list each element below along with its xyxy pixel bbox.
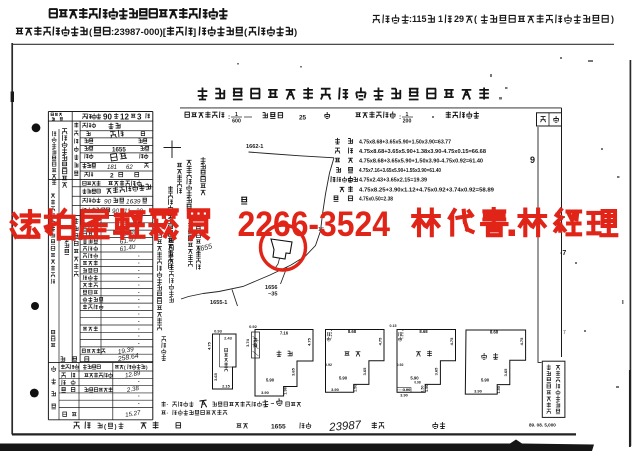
svg-text:1: 1	[438, 14, 443, 24]
svg-text:3.90: 3.90	[474, 389, 483, 394]
svg-text:2.43: 2.43	[224, 336, 233, 341]
svg-text:·: ·	[138, 334, 140, 340]
svg-text:0.92: 0.92	[397, 363, 404, 367]
svg-text:1.50: 1.50	[497, 386, 501, 393]
svg-text:~35: ~35	[268, 292, 278, 298]
svg-text:62: 62	[126, 165, 133, 171]
svg-text:0.93: 0.93	[214, 329, 223, 334]
svg-text:4.75: 4.75	[519, 337, 524, 346]
svg-text:3.90: 3.90	[261, 390, 270, 395]
svg-text:1655-1: 1655-1	[210, 300, 227, 306]
svg-text:200: 200	[403, 119, 412, 125]
svg-text:2.15: 2.15	[222, 383, 231, 388]
svg-text:8.68: 8.68	[419, 329, 428, 334]
svg-text:2: 2	[110, 173, 114, 180]
svg-text:4.75x7.16+3.65x5.90+1.55x3.90=: 4.75x7.16+3.65x5.90+1.55x3.90=61.40	[359, 168, 441, 174]
svg-text::: :	[228, 114, 230, 121]
svg-text:4.75x8.68+3.65x5.90+1.50x3.90-: 4.75x8.68+3.65x5.90+1.50x3.90-4.75x0.92=…	[359, 158, 483, 164]
svg-text:1655: 1655	[112, 147, 126, 154]
svg-text:(: (	[474, 14, 477, 24]
svg-text:4.75x8.25+3.90x1.12+4.75x0.92+: 4.75x8.25+3.90x1.12+4.75x0.92+3.74x0.92=…	[359, 188, 494, 194]
svg-text:1.98: 1.98	[284, 387, 288, 394]
svg-text:·: ·	[138, 254, 140, 260]
svg-text:3.65: 3.65	[434, 367, 439, 376]
svg-text:3.65: 3.65	[362, 367, 367, 376]
svg-text:·: ·	[138, 341, 140, 347]
svg-text:·: ·	[138, 298, 140, 304]
svg-text::23987-000)[: :23987-000)[	[111, 27, 167, 38]
svg-text:5.90: 5.90	[481, 378, 490, 383]
svg-text:]: ]	[193, 27, 196, 38]
svg-text:2266-3524: 2266-3524	[238, 204, 391, 244]
svg-text:3.90: 3.90	[400, 393, 407, 397]
svg-text:4.75: 4.75	[206, 341, 211, 350]
svg-text:1639: 1639	[126, 199, 141, 206]
svg-text:·: ·	[138, 327, 140, 333]
svg-text:4.75x8.68+3.65x5.90+1.38x3.90-: 4.75x8.68+3.65x5.90+1.38x3.90-4.75x0.15=…	[359, 149, 486, 155]
svg-text:600: 600	[232, 119, 241, 125]
svg-text:0.92: 0.92	[249, 324, 258, 329]
svg-text:5.90: 5.90	[339, 376, 348, 381]
svg-text:·: ·	[138, 320, 140, 326]
svg-text:·: ·	[138, 283, 140, 289]
svg-text:·: ·	[167, 411, 169, 417]
svg-text:8.68: 8.68	[348, 329, 357, 334]
svg-text:3.65: 3.65	[213, 372, 218, 381]
svg-text:·: ·	[138, 401, 140, 407]
svg-text:·: ·	[138, 394, 140, 400]
svg-text:·: ·	[138, 268, 140, 274]
svg-text:3: 3	[137, 113, 142, 122]
svg-text:0.15: 0.15	[390, 324, 397, 328]
svg-text:7: 7	[563, 330, 566, 336]
svg-text:·: ·	[138, 261, 140, 267]
svg-text:(: (	[104, 425, 106, 431]
svg-text:7.16: 7.16	[280, 331, 289, 336]
svg-text:-7: -7	[560, 250, 566, 257]
svg-text:89. 08. 5,000: 89. 08. 5,000	[529, 422, 556, 427]
svg-text:3.65: 3.65	[503, 368, 508, 377]
svg-text:3.65: 3.65	[291, 367, 296, 376]
svg-text:90: 90	[103, 113, 112, 122]
svg-text:0.98: 0.98	[414, 380, 420, 384]
svg-text:·: ·	[138, 290, 140, 296]
svg-text:4.75: 4.75	[449, 337, 454, 346]
svg-text::115: :115	[409, 14, 427, 24]
svg-text:1655: 1655	[271, 423, 286, 430]
svg-text:·: ·	[138, 312, 140, 318]
svg-text:4.75: 4.75	[378, 337, 383, 346]
svg-text:·: ·	[138, 380, 140, 386]
svg-text:4.75x8.68+3.65x5.90+1.50x3.90=: 4.75x8.68+3.65x5.90+1.50x3.90=63.77	[359, 139, 451, 145]
svg-text:·: ·	[138, 276, 140, 282]
svg-text:4.75: 4.75	[307, 337, 312, 346]
svg-text:9: 9	[530, 155, 535, 165]
svg-text:·: ·	[167, 403, 169, 409]
svg-text::: :	[399, 114, 401, 121]
svg-text:·: ·	[138, 305, 140, 311]
svg-text:1.50: 1.50	[353, 385, 357, 392]
svg-text:): )	[294, 27, 297, 38]
svg-text:25: 25	[299, 115, 307, 122]
svg-text:1656: 1656	[265, 285, 277, 291]
svg-text:29: 29	[454, 14, 464, 24]
svg-text:12: 12	[120, 113, 129, 122]
svg-text:5.90: 5.90	[266, 378, 275, 383]
svg-text:): )	[115, 425, 117, 431]
svg-text:3.90: 3.90	[331, 387, 340, 392]
svg-text:1662-1: 1662-1	[246, 144, 263, 150]
svg-text:): )	[611, 14, 614, 24]
svg-text:90: 90	[104, 199, 112, 206]
svg-text:3.74: 3.74	[245, 338, 250, 347]
svg-text:181: 181	[107, 165, 117, 171]
svg-text:8.68: 8.68	[490, 330, 499, 335]
svg-text:1.50: 1.50	[420, 386, 424, 393]
svg-text:4.75x2.43+3.65x2.15=19.39: 4.75x2.43+3.65x2.15=19.39	[359, 178, 427, 184]
svg-text:1.50: 1.50	[425, 385, 429, 392]
svg-text:4.75x0.50=2.38: 4.75x0.50=2.38	[359, 197, 393, 203]
svg-text:0.92: 0.92	[325, 363, 332, 367]
